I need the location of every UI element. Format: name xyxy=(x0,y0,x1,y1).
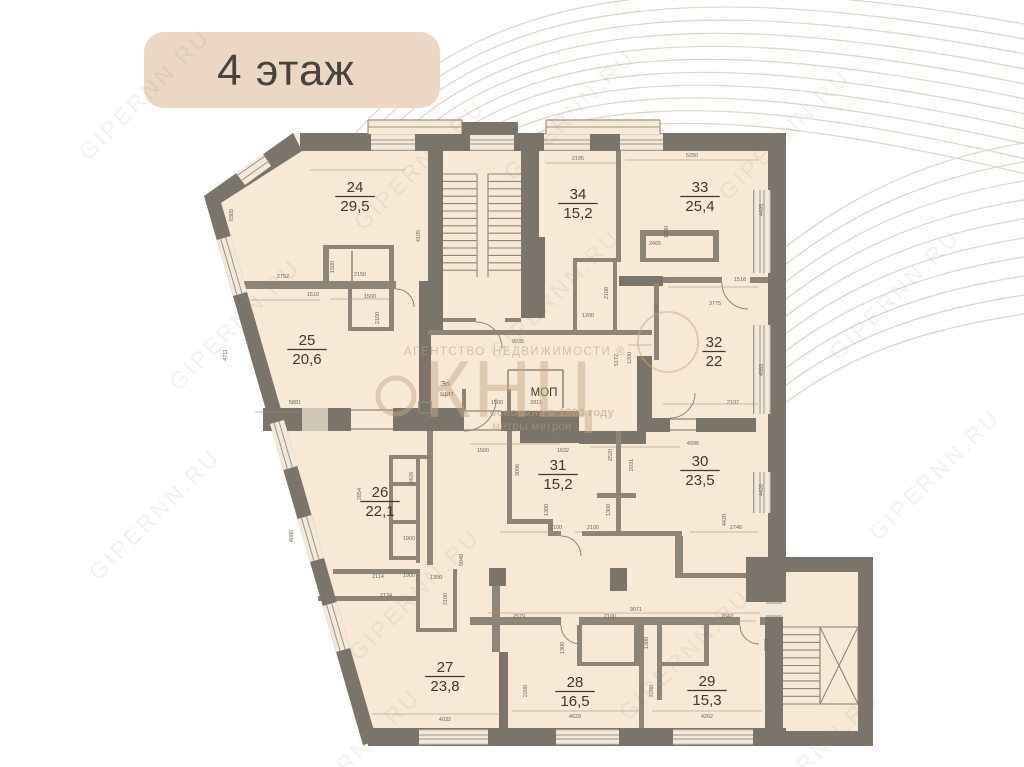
svg-text:4262: 4262 xyxy=(701,714,713,720)
svg-text:1300: 1300 xyxy=(544,504,550,516)
svg-text:9071: 9071 xyxy=(630,607,642,613)
svg-text:1200: 1200 xyxy=(627,352,633,364)
svg-text:2150: 2150 xyxy=(354,272,366,278)
svg-text:2107: 2107 xyxy=(727,400,739,406)
svg-text:4420: 4420 xyxy=(722,514,728,526)
svg-text:4032: 4032 xyxy=(439,717,451,723)
svg-text:основана в 1993 году: основана в 1993 году xyxy=(490,407,615,419)
svg-text:метры метров: метры метров xyxy=(492,421,572,433)
svg-text:4105: 4105 xyxy=(416,230,422,242)
svg-text:4080: 4080 xyxy=(289,530,295,542)
svg-text:2100: 2100 xyxy=(604,287,610,299)
svg-text:1518: 1518 xyxy=(734,277,746,283)
svg-text:6305: 6305 xyxy=(229,209,235,221)
svg-text:22,1: 22,1 xyxy=(365,503,394,520)
svg-text:2100: 2100 xyxy=(375,312,381,324)
svg-text:1632: 1632 xyxy=(557,448,569,454)
svg-text:25: 25 xyxy=(299,332,316,349)
svg-text:15,3: 15,3 xyxy=(692,692,721,709)
svg-text:2100: 2100 xyxy=(550,525,562,531)
svg-text:3775: 3775 xyxy=(709,301,721,307)
svg-text:28: 28 xyxy=(567,674,584,691)
svg-text:31: 31 xyxy=(550,457,567,474)
svg-text:1300: 1300 xyxy=(606,504,612,516)
svg-text:1200: 1200 xyxy=(582,313,594,319)
svg-text:4420: 4420 xyxy=(759,484,765,496)
svg-text:2100: 2100 xyxy=(443,593,449,605)
svg-text:2730: 2730 xyxy=(764,639,770,651)
svg-text:2426: 2426 xyxy=(409,472,415,484)
svg-text:2854: 2854 xyxy=(357,488,363,500)
svg-text:4 этаж: 4 этаж xyxy=(217,46,355,95)
svg-text:1900: 1900 xyxy=(403,536,415,542)
svg-text:1300: 1300 xyxy=(644,637,650,649)
svg-text:1500: 1500 xyxy=(477,448,489,454)
svg-text:1500: 1500 xyxy=(330,261,336,273)
svg-text:23,8: 23,8 xyxy=(430,678,459,695)
svg-text:23,5: 23,5 xyxy=(685,472,714,489)
svg-text:29: 29 xyxy=(699,673,716,690)
svg-text:16,5: 16,5 xyxy=(560,693,589,710)
svg-text:27: 27 xyxy=(437,659,454,676)
svg-text:2520: 2520 xyxy=(608,449,614,461)
svg-text:2134: 2134 xyxy=(380,593,392,599)
svg-text:24: 24 xyxy=(347,179,364,196)
svg-text:2100: 2100 xyxy=(604,614,616,620)
svg-text:2200: 2200 xyxy=(523,685,529,697)
svg-text:4996: 4996 xyxy=(687,441,699,447)
svg-text:2114: 2114 xyxy=(372,574,384,580)
svg-text:1510: 1510 xyxy=(307,292,319,298)
svg-text:2195: 2195 xyxy=(572,156,584,162)
svg-text:4495: 4495 xyxy=(759,204,765,216)
svg-text:3006: 3006 xyxy=(515,464,521,476)
svg-text:2579: 2579 xyxy=(513,614,525,620)
svg-text:15,2: 15,2 xyxy=(563,205,592,222)
svg-text:2746: 2746 xyxy=(730,525,742,531)
svg-text:4629: 4629 xyxy=(569,714,581,720)
svg-text:25,4: 25,4 xyxy=(685,198,714,215)
svg-text:34: 34 xyxy=(570,186,587,203)
svg-text:2100: 2100 xyxy=(587,525,599,531)
svg-text:2031: 2031 xyxy=(629,459,635,471)
svg-text:30: 30 xyxy=(692,453,709,470)
svg-text:1300: 1300 xyxy=(560,642,566,654)
svg-text:5250: 5250 xyxy=(686,153,698,159)
svg-text:15,2: 15,2 xyxy=(543,476,572,493)
svg-text:32: 32 xyxy=(706,334,723,351)
svg-text:26: 26 xyxy=(372,484,389,501)
svg-text:2465: 2465 xyxy=(649,241,661,247)
svg-text:4565: 4565 xyxy=(759,364,765,376)
svg-text:1000: 1000 xyxy=(664,226,670,238)
svg-text:22: 22 xyxy=(706,353,723,370)
svg-text:33: 33 xyxy=(692,179,709,196)
svg-text:5881: 5881 xyxy=(289,400,301,406)
svg-text:20,6: 20,6 xyxy=(292,351,321,368)
